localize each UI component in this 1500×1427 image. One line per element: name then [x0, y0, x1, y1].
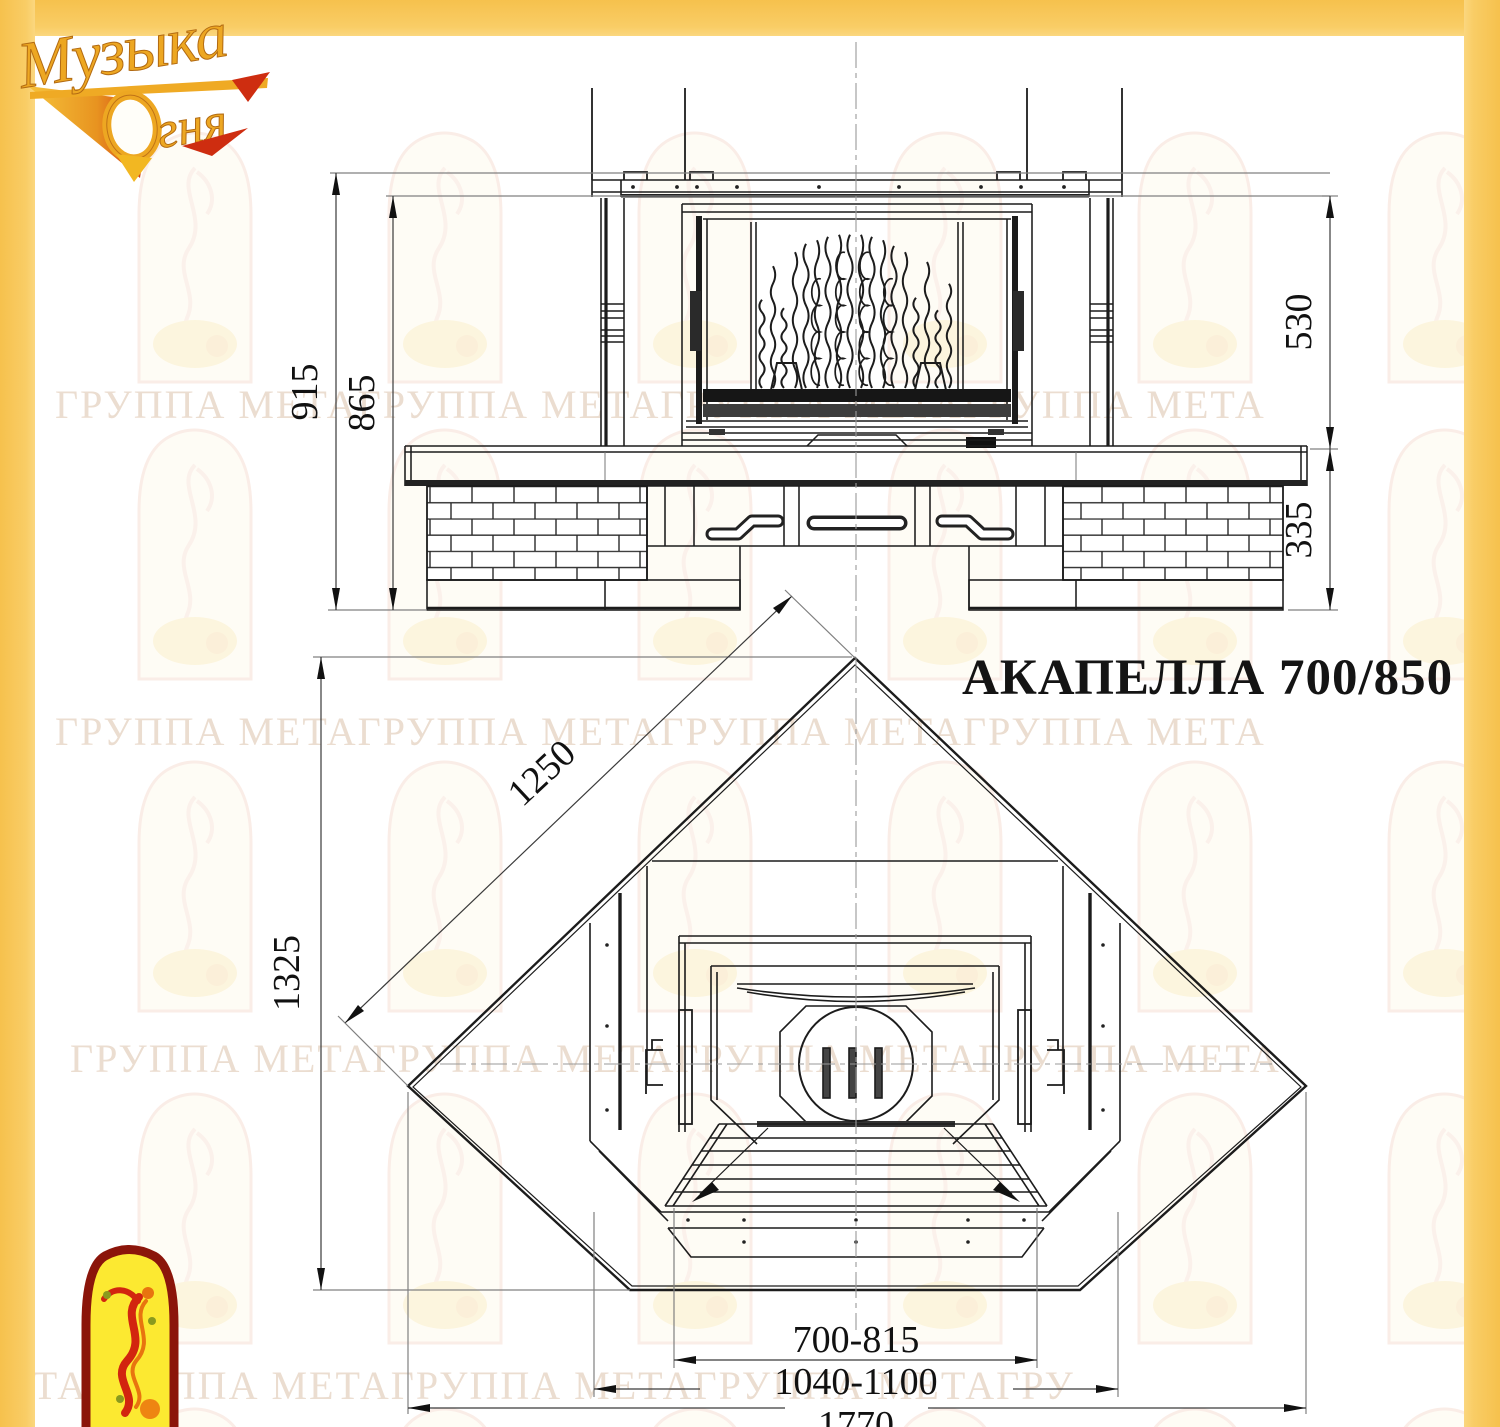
svg-text:АКАПЕЛЛА 700/850: АКАПЕЛЛА 700/850: [962, 650, 1453, 706]
svg-text:915: 915: [284, 364, 326, 421]
svg-text:865: 865: [341, 375, 383, 432]
svg-text:700-815: 700-815: [793, 1319, 920, 1361]
svg-text:530: 530: [1278, 294, 1320, 351]
svg-text:ГРУППА МЕТАГРУППА МЕТАГРУППА М: ГРУППА МЕТАГРУППА МЕТАГРУППА МЕТАГРУППА …: [55, 382, 1266, 427]
svg-text:1325: 1325: [266, 935, 308, 1011]
svg-text:1770: 1770: [818, 1404, 894, 1427]
svg-text:ГРУППА МЕТАГРУППА МЕТАГРУППА М: ГРУППА МЕТАГРУППА МЕТАГРУППА МЕТАГРУППА …: [70, 1036, 1281, 1081]
svg-text:1040-1100: 1040-1100: [774, 1361, 937, 1403]
svg-text:ГРУППА МЕТАГРУППА МЕТАГРУППА М: ГРУППА МЕТАГРУППА МЕТАГРУППА МЕТАГРУППА …: [55, 709, 1266, 754]
svg-text:335: 335: [1278, 502, 1320, 559]
